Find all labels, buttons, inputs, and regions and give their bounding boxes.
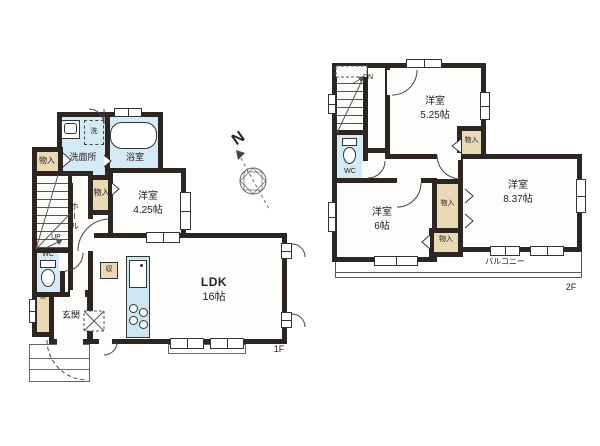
room425-east-window [180, 192, 191, 230]
label-washroom: 洗面所 [60, 152, 106, 162]
opening-hall-entrance [70, 290, 85, 298]
opening-525-door [387, 70, 394, 95]
floorplan: 洗面所 浴室 洗 物入 物入 洋室 4.25帖 LDK 16帖 ホール UP W… [0, 0, 600, 446]
room-ldk [88, 233, 287, 344]
label-closet-mid: 物入 [88, 188, 115, 197]
label-meter: M [36, 294, 50, 302]
room837-east-window [576, 179, 586, 213]
room525-east-window [480, 92, 490, 120]
opening-837-door [437, 153, 461, 160]
compass-arrow-icon [236, 150, 245, 160]
label-entrance: 玄関 [53, 310, 89, 320]
ldk-east-door-arc-1 [292, 244, 305, 257]
opening-entrance-door [57, 339, 83, 345]
label-floor-2f: 2F [560, 282, 582, 292]
opening-hall-ldk [87, 219, 94, 251]
label-room525-size: 5.25帖 [404, 110, 466, 122]
label-room837-size: 8.37帖 [487, 194, 549, 206]
label-ldk-size: 16帖 [191, 291, 237, 304]
kitchen-sink-icon [129, 260, 147, 288]
label-ldk-name: LDK [191, 276, 237, 290]
label-closet-nw: 物入 [33, 156, 61, 165]
toilet-tank-1f [40, 260, 56, 268]
label-laundry: 洗 [87, 128, 101, 136]
bathtub-icon [110, 122, 157, 149]
label-kitchen-storage: 収 [100, 266, 118, 274]
label-bath: 浴室 [112, 152, 158, 162]
label-room837-name: 洋室 [490, 180, 546, 192]
stove-icon [128, 302, 148, 332]
compass-north-label: N [229, 128, 249, 149]
ldk-east-door-1 [281, 243, 292, 259]
opening-hall-washroom [72, 176, 86, 183]
label-hall: ホール [70, 196, 79, 238]
label-balcony: バルコニー [465, 257, 545, 266]
room837-balcony-door-1 [490, 246, 520, 256]
label-room425-size: 4.25帖 [122, 205, 174, 217]
opening-ldk-south-door [99, 339, 112, 345]
label-closet-2f-a: 物入 [457, 137, 486, 145]
ldk-south-window-1 [170, 338, 204, 349]
room425-ldk-sliding-door [146, 232, 180, 243]
bath-window [114, 108, 142, 117]
room-western-6 [332, 178, 437, 262]
label-wc-2f: WC [340, 168, 360, 176]
ldk-south-window-2 [210, 338, 244, 349]
label-up: UP [46, 234, 66, 242]
label-wc-1f: WC [38, 251, 58, 259]
ldk-east-door-arc-2 [292, 314, 305, 327]
washbasin-icon [61, 120, 80, 139]
label-dn: DN [358, 74, 378, 82]
label-room6-name: 洋室 [354, 207, 410, 219]
label-closet-2f-c: 物入 [429, 236, 463, 244]
room525-north-window [406, 59, 442, 68]
room6-south-window [374, 256, 418, 266]
label-room525-name: 洋室 [407, 96, 463, 108]
room-western-425 [108, 168, 186, 238]
label-floor-1f: 1F [268, 344, 290, 354]
opening-wc2-door [362, 161, 369, 178]
west-wall-window [29, 299, 36, 323]
opening-wc-door [59, 253, 66, 271]
label-room6-size: 6帖 [358, 221, 406, 233]
stairs2f-west-window [328, 94, 336, 114]
entrance-porch [29, 344, 90, 382]
room837-balcony-door-2 [530, 246, 564, 256]
compass-icon [236, 150, 269, 209]
label-room425-name: 洋室 [125, 191, 171, 203]
room6-west-window [328, 202, 336, 232]
label-closet-2f-b: 物入 [432, 200, 463, 208]
opening-6-door [397, 177, 421, 184]
ldk-east-door-2 [281, 312, 292, 328]
toilet-tank-2f [342, 138, 357, 146]
